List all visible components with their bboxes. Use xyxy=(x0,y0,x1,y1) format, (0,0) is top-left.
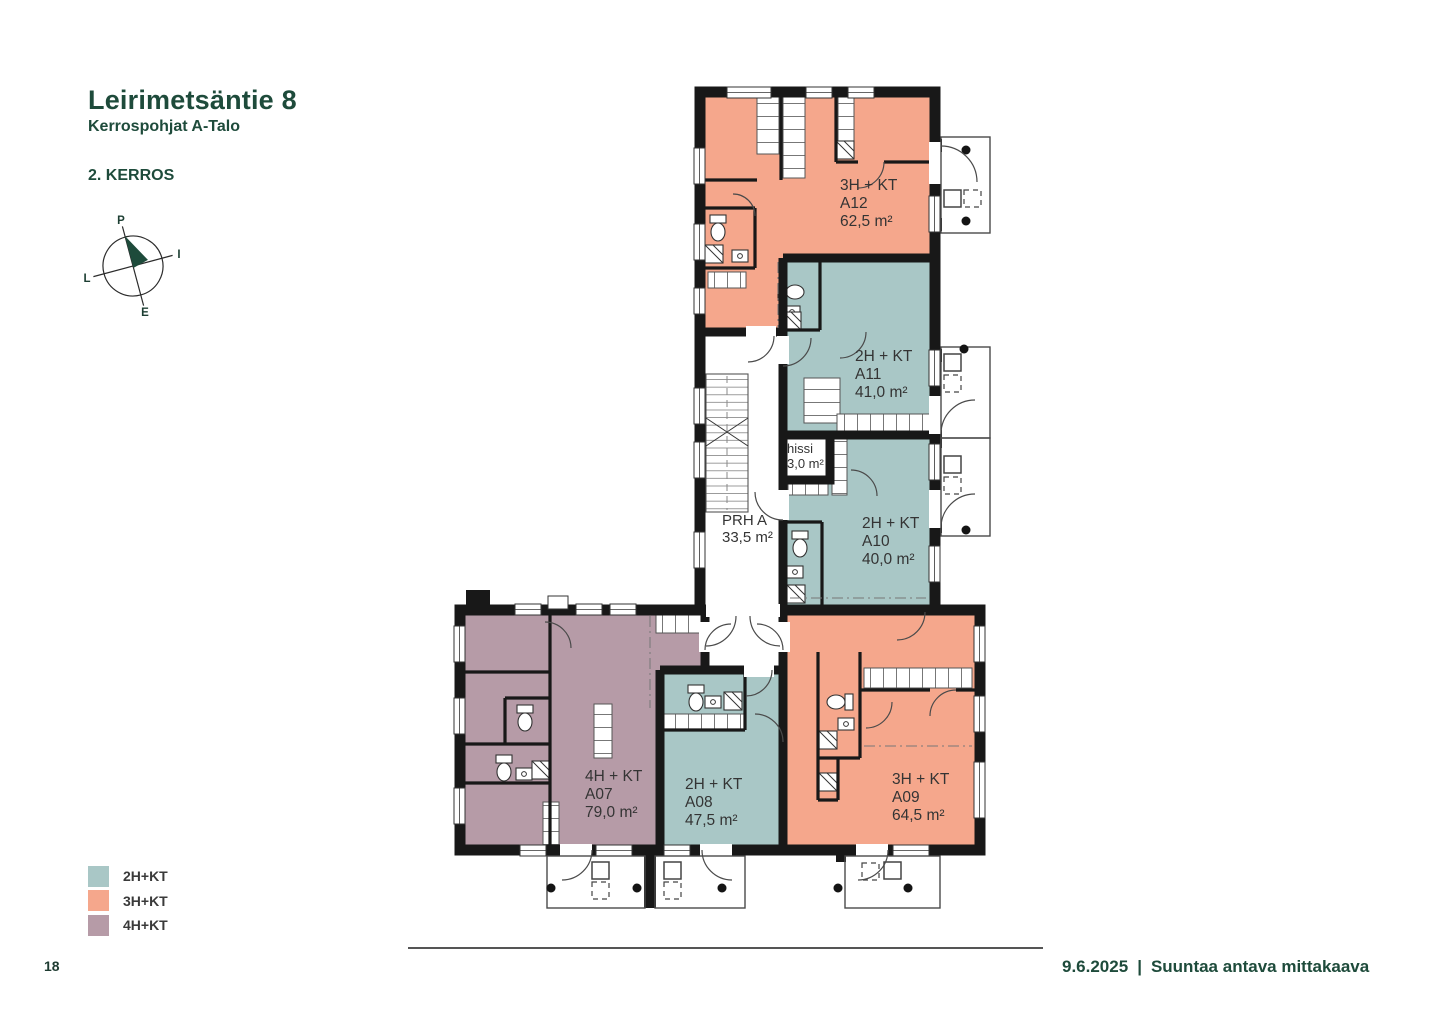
apartment-a10-type: 2H + KT xyxy=(862,515,920,532)
compass-south-label: E xyxy=(141,307,149,319)
apartment-a09-type: 3H + KT xyxy=(892,771,950,788)
floor-plan-canvas: P I E L xyxy=(0,0,1440,1018)
apartment-a10-size: 40,0 m² xyxy=(862,551,915,568)
footer-scale-note: Suuntaa antava mittakaava xyxy=(1151,957,1369,976)
apartment-a11-size: 41,0 m² xyxy=(855,384,908,401)
elevator-size: 3,0 m² xyxy=(787,456,825,471)
apartment-a07-id: A07 xyxy=(585,786,613,803)
apartment-a11-type: 2H + KT xyxy=(855,348,913,365)
apartment-a08-type: 2H + KT xyxy=(685,776,743,793)
apartment-a12-size: 62,5 m² xyxy=(840,213,893,230)
footer-date: 9.6.2025 xyxy=(1062,957,1128,976)
apartment-a09-size: 64,5 m² xyxy=(892,807,945,824)
apartment-a08-id: A08 xyxy=(685,794,713,811)
footer-rule xyxy=(408,947,1043,949)
legend-swatch-2hkt xyxy=(88,866,109,887)
apartment-a11-id: A11 xyxy=(855,366,881,383)
balcony-a10 xyxy=(941,438,990,536)
apartment-a12-type: 3H + KT xyxy=(840,177,898,194)
legend-swatch-3hkt xyxy=(88,890,109,911)
compass-north-label: P xyxy=(117,215,125,227)
apartment-a09-area xyxy=(783,610,980,850)
stairwell-label: PRH A xyxy=(722,512,767,529)
compass-east-label: I xyxy=(177,249,180,261)
footer-separator: | xyxy=(1137,957,1142,976)
legend-label-2hkt: 2H+KT xyxy=(123,868,168,884)
compass: P I E L xyxy=(83,215,183,319)
floor-plan: 3H + KT A12 62,5 m² 2H + KT A11 41,0 m² … xyxy=(454,87,990,908)
legend-label-4hkt: 4H+KT xyxy=(123,917,168,933)
footer-note: 9.6.2025|Suuntaa antava mittakaava xyxy=(1062,957,1369,977)
legend: 2H+KT 3H+KT 4H+KT xyxy=(88,864,168,938)
terrace-a09 xyxy=(845,856,940,908)
apartment-a10-id: A10 xyxy=(862,533,890,550)
legend-item-3hkt: 3H+KT xyxy=(88,889,168,914)
apartment-a08-size: 47,5 m² xyxy=(685,812,738,829)
page-number: 18 xyxy=(44,958,60,974)
legend-item-4hkt: 4H+KT xyxy=(88,913,168,938)
brochure-page: Leirimetsäntie 8 Kerrospohjat A-Talo 2. … xyxy=(0,0,1440,1018)
compass-west-label: L xyxy=(83,273,90,285)
staircase xyxy=(706,374,748,512)
apartment-a09-id: A09 xyxy=(892,789,920,806)
legend-swatch-4hkt xyxy=(88,915,109,936)
apartment-a07-size: 79,0 m² xyxy=(585,804,638,821)
apartment-a07-type: 4H + KT xyxy=(585,768,643,785)
apartment-a12-id: A12 xyxy=(840,195,868,212)
elevator-label: hissi xyxy=(787,441,813,456)
legend-label-3hkt: 3H+KT xyxy=(123,893,168,909)
stairwell-size: 33,5 m² xyxy=(722,529,773,546)
legend-item-2hkt: 2H+KT xyxy=(88,864,168,889)
